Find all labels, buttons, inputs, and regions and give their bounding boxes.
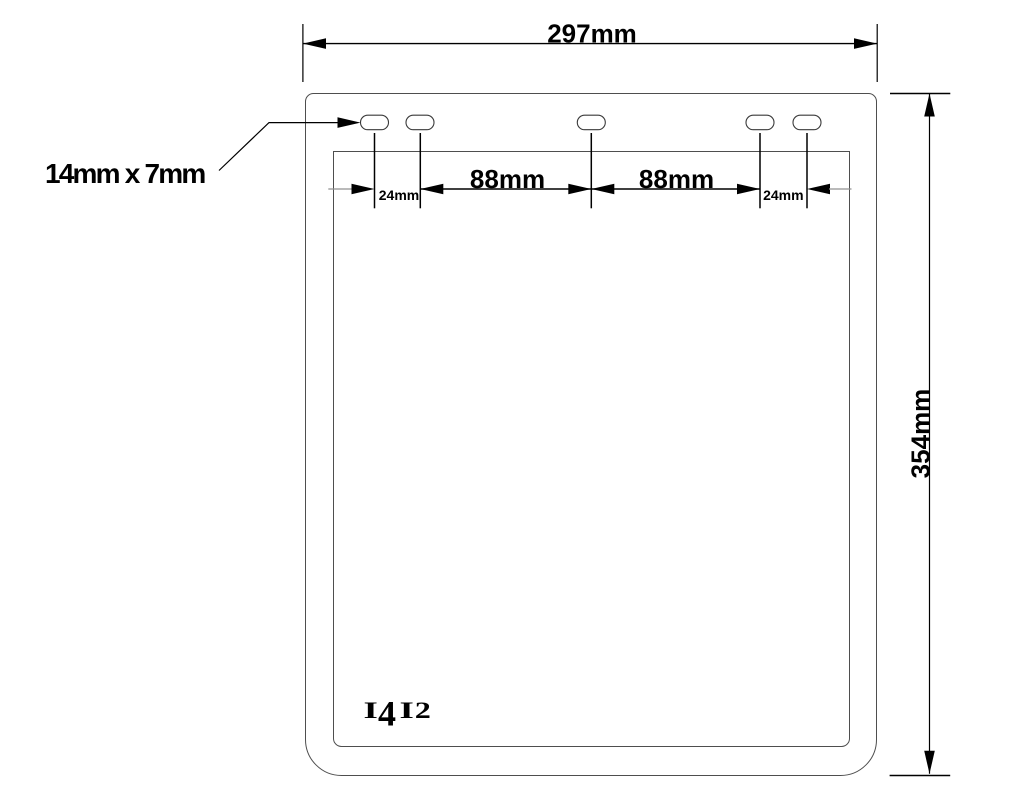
svg-text:4: 4 [378,693,396,733]
svg-text:2: 2 [415,698,431,723]
svg-text:354mm: 354mm [905,389,935,479]
svg-text:I: I [399,698,413,723]
svg-text:88mm: 88mm [639,164,714,194]
svg-text:I: I [363,698,377,723]
svg-text:297mm: 297mm [547,18,637,48]
svg-text:14mm x 7mm: 14mm x 7mm [45,158,205,189]
svg-text:24mm: 24mm [763,187,803,203]
svg-text:24mm: 24mm [379,187,419,203]
svg-text:88mm: 88mm [470,164,545,194]
